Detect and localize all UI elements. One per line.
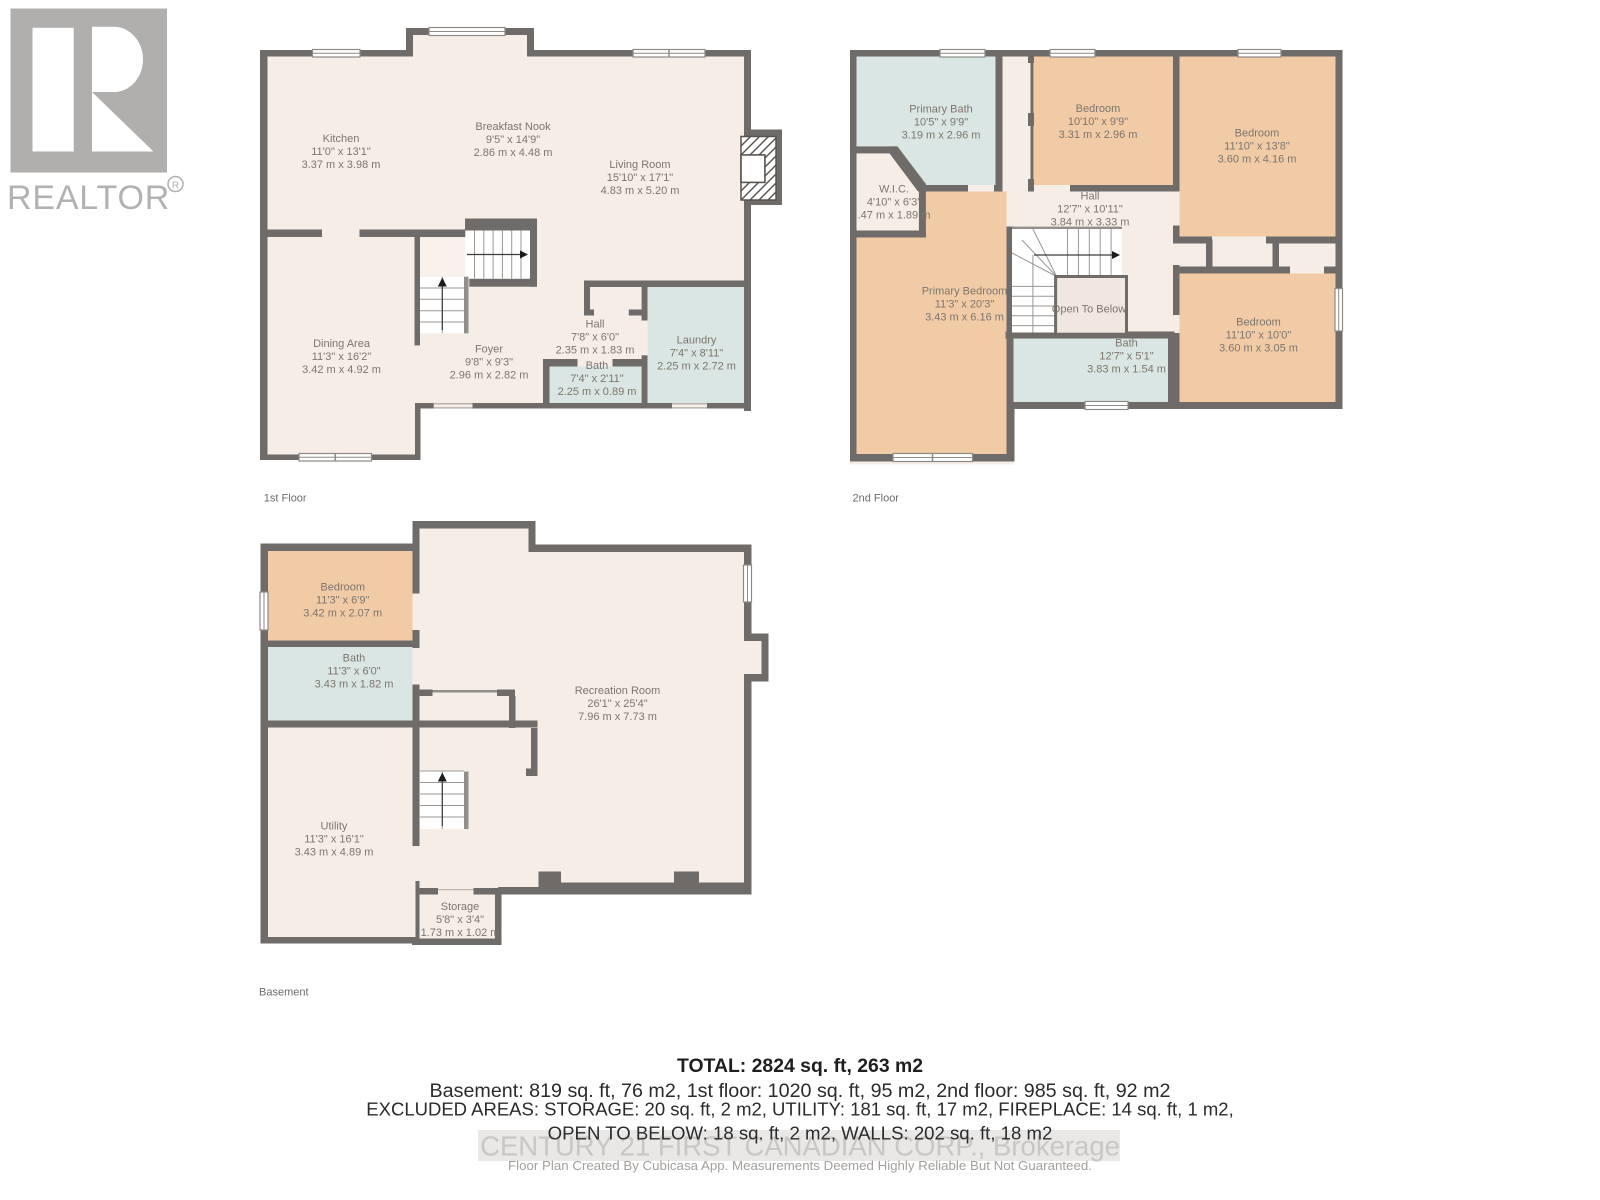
- svg-text:3.60 m x 3.05 m: 3.60 m x 3.05 m: [1219, 343, 1298, 355]
- svg-text:3.43 m x 4.89 m: 3.43 m x 4.89 m: [295, 847, 374, 859]
- svg-text:Living Room: Living Room: [609, 159, 670, 171]
- svg-text:Hall: Hall: [1081, 191, 1100, 203]
- svg-text:Bedroom: Bedroom: [320, 582, 365, 594]
- svg-text:Dining Area: Dining Area: [313, 338, 371, 350]
- svg-text:Recreation Room: Recreation Room: [575, 685, 661, 697]
- svg-text:Bath: Bath: [586, 360, 609, 372]
- svg-text:11'3" x 6'0": 11'3" x 6'0": [327, 666, 380, 678]
- svg-text:3.83 m x 1.54 m: 3.83 m x 1.54 m: [1087, 364, 1166, 376]
- svg-text:Bath: Bath: [1115, 338, 1138, 350]
- svg-text:REALTOR: REALTOR: [7, 179, 170, 217]
- svg-text:2.25 m x 0.89 m: 2.25 m x 0.89 m: [558, 386, 637, 398]
- svg-text:Laundry: Laundry: [677, 335, 717, 347]
- svg-text:11'0" x 13'1": 11'0" x 13'1": [311, 146, 371, 158]
- svg-text:OPEN TO BELOW: 18 sq. ft, 2 m2: OPEN TO BELOW: 18 sq. ft, 2 m2, WALLS: 2…: [548, 1123, 1053, 1144]
- svg-text:.47 m x 1.89 m: .47 m x 1.89 m: [858, 210, 931, 222]
- svg-text:Bedroom: Bedroom: [1076, 103, 1121, 115]
- svg-text:9'5" x 14'9": 9'5" x 14'9": [486, 134, 540, 146]
- svg-text:3.84 m x 3.33 m: 3.84 m x 3.33 m: [1051, 217, 1130, 229]
- svg-text:5'8" x 3'4": 5'8" x 3'4": [436, 914, 484, 926]
- svg-text:12'7" x 10'11": 12'7" x 10'11": [1057, 204, 1123, 216]
- svg-text:11'10" x 13'8": 11'10" x 13'8": [1224, 141, 1290, 153]
- svg-text:3.43 m x 1.82 m: 3.43 m x 1.82 m: [315, 679, 394, 691]
- svg-text:11'3" x 16'1": 11'3" x 16'1": [304, 834, 364, 846]
- svg-text:26'1" x 25'4": 26'1" x 25'4": [587, 698, 647, 710]
- svg-text:Breakfast Nook: Breakfast Nook: [475, 121, 551, 133]
- svg-text:2nd Floor: 2nd Floor: [853, 493, 900, 505]
- svg-text:Primary Bedroom: Primary Bedroom: [922, 286, 1008, 298]
- svg-text:R: R: [172, 181, 179, 192]
- svg-text:1st Floor: 1st Floor: [264, 493, 307, 505]
- svg-text:TOTAL: 2824 sq. ft, 263 m2: TOTAL: 2824 sq. ft, 263 m2: [677, 1055, 923, 1077]
- svg-text:12'7" x 5'1": 12'7" x 5'1": [1099, 351, 1153, 363]
- svg-text:4'10" x 6'3": 4'10" x 6'3": [867, 197, 921, 209]
- svg-text:Bedroom: Bedroom: [1235, 128, 1280, 140]
- svg-text:7'4" x 8'11": 7'4" x 8'11": [670, 348, 723, 360]
- svg-text:2.96 m x 2.82 m: 2.96 m x 2.82 m: [450, 370, 529, 382]
- svg-text:3.31 m x 2.96 m: 3.31 m x 2.96 m: [1059, 129, 1138, 141]
- svg-text:11'3" x 20'3": 11'3" x 20'3": [935, 299, 995, 311]
- svg-text:2.25 m x 2.72 m: 2.25 m x 2.72 m: [657, 361, 736, 373]
- svg-text:10'5" x 9'9": 10'5" x 9'9": [914, 117, 968, 129]
- svg-text:11'3" x 6'9": 11'3" x 6'9": [316, 595, 369, 607]
- svg-text:7'8" x 6'0": 7'8" x 6'0": [571, 332, 619, 344]
- svg-text:11'3" x 16'2": 11'3" x 16'2": [312, 351, 372, 363]
- svg-text:Utility: Utility: [321, 821, 348, 833]
- svg-text:Kitchen: Kitchen: [323, 133, 360, 145]
- svg-text:Bedroom: Bedroom: [1236, 317, 1281, 329]
- svg-text:4.83 m x 5.20 m: 4.83 m x 5.20 m: [601, 185, 680, 197]
- svg-text:2.86 m x 4.48 m: 2.86 m x 4.48 m: [474, 147, 553, 159]
- svg-text:10'10" x 9'9": 10'10" x 9'9": [1068, 116, 1128, 128]
- svg-text:1.73 m x 1.02 m: 1.73 m x 1.02 m: [421, 927, 500, 939]
- svg-text:Primary Bath: Primary Bath: [909, 104, 973, 116]
- svg-text:3.60 m x 4.16 m: 3.60 m x 4.16 m: [1218, 154, 1297, 166]
- svg-text:Basement: Basement: [259, 987, 309, 999]
- svg-text:Foyer: Foyer: [475, 344, 503, 356]
- svg-text:W.I.C.: W.I.C.: [879, 184, 909, 196]
- svg-text:3.19 m x 2.96 m: 3.19 m x 2.96 m: [902, 130, 981, 142]
- svg-text:3.43 m x 6.16 m: 3.43 m x 6.16 m: [925, 312, 1004, 324]
- svg-text:Bath: Bath: [343, 653, 366, 665]
- svg-text:Hall: Hall: [586, 319, 605, 331]
- svg-text:3.42 m x 2.07 m: 3.42 m x 2.07 m: [303, 608, 382, 620]
- svg-text:EXCLUDED AREAS: STORAGE: 20 sq: EXCLUDED AREAS: STORAGE: 20 sq. ft, 2 m2…: [366, 1099, 1233, 1120]
- svg-text:9'8" x 9'3": 9'8" x 9'3": [465, 357, 513, 369]
- svg-text:11'10" x 10'0": 11'10" x 10'0": [1226, 330, 1292, 342]
- svg-text:2.35 m x 1.83 m: 2.35 m x 1.83 m: [556, 345, 635, 357]
- svg-text:Storage: Storage: [441, 901, 480, 913]
- svg-text:Open To Below: Open To Below: [1052, 304, 1126, 316]
- svg-text:7'4" x 2'11": 7'4" x 2'11": [570, 373, 623, 385]
- svg-text:3.42 m x 4.92 m: 3.42 m x 4.92 m: [302, 364, 381, 376]
- svg-text:15'10" x 17'1": 15'10" x 17'1": [607, 172, 674, 184]
- svg-text:7.96 m x 7.73 m: 7.96 m x 7.73 m: [578, 711, 657, 723]
- svg-text:3.37 m x 3.98 m: 3.37 m x 3.98 m: [302, 159, 381, 171]
- svg-text:Floor Plan Created By Cubicasa: Floor Plan Created By Cubicasa App. Meas…: [508, 1158, 1092, 1173]
